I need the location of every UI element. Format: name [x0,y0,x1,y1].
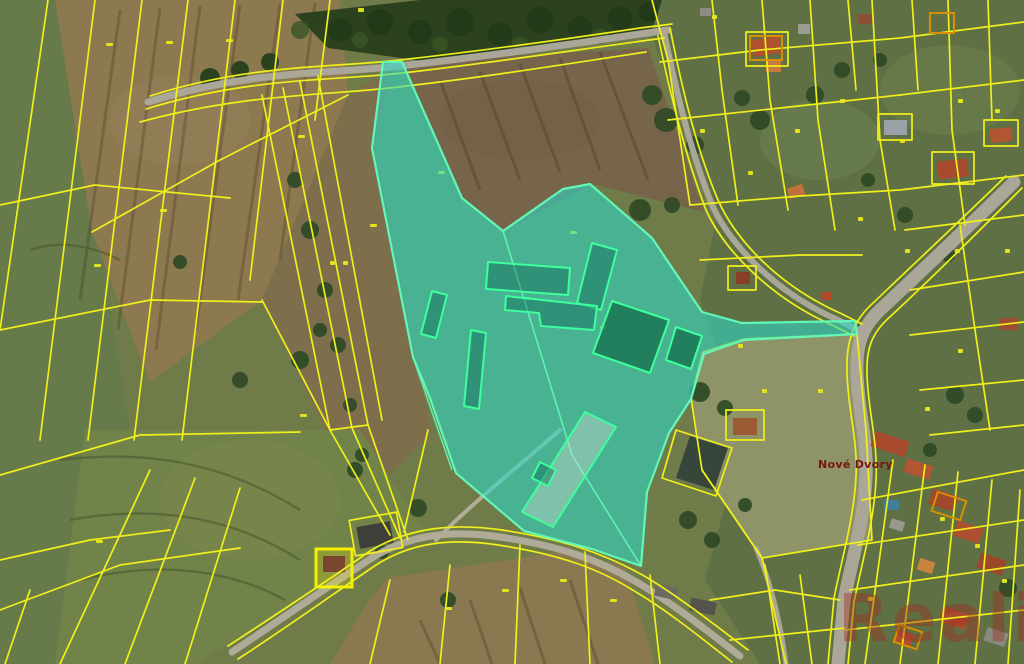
aerial-cadastral-map[interactable]: Nové Dvory Reality [0,0,1024,664]
place-label: Nové Dvory [818,458,893,471]
map-canvas[interactable]: Nové Dvory [0,0,1024,664]
